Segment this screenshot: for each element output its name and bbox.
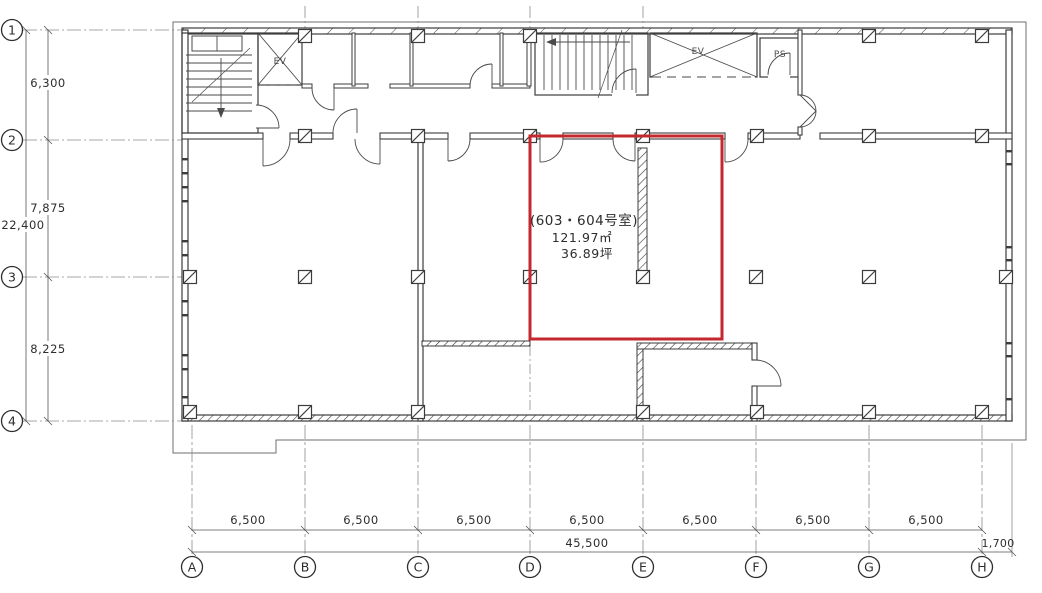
room-area-m2-label: 121.97㎡ bbox=[552, 230, 612, 245]
dim-7875: 7,875 bbox=[30, 201, 65, 215]
dim-22400-total: 22,400 bbox=[1, 218, 44, 232]
bottom-dimensions: 6,500 6,500 6,500 6,500 6,500 6,500 6,50… bbox=[188, 513, 1016, 556]
row-marker-3: 3 bbox=[8, 270, 16, 285]
dim-6500-5: 6,500 bbox=[682, 513, 717, 527]
interior-walls bbox=[182, 30, 802, 421]
dim-6500-3: 6,500 bbox=[456, 513, 491, 527]
row-marker-1: 1 bbox=[8, 23, 16, 38]
dim-6500-2: 6,500 bbox=[343, 513, 378, 527]
floor-plan-drawing: EV EV PS bbox=[0, 0, 1042, 593]
row-marker-4: 4 bbox=[8, 414, 16, 429]
floor-plan-canvas: EV EV PS bbox=[0, 0, 1042, 593]
col-marker-h: H bbox=[977, 560, 986, 575]
stairs-icon bbox=[186, 36, 252, 118]
stairs-icon-2 bbox=[544, 30, 632, 98]
elevator-main-label: EV bbox=[692, 47, 705, 57]
grid-col-markers: A B C D E F G H bbox=[182, 557, 993, 578]
dim-45500-total: 45,500 bbox=[565, 536, 608, 550]
dim-6500-4: 6,500 bbox=[569, 513, 604, 527]
col-marker-c: C bbox=[414, 560, 423, 575]
dim-8225: 8,225 bbox=[30, 342, 65, 356]
room-area-tsubo-label: 36.89坪 bbox=[561, 246, 613, 261]
col-marker-b: B bbox=[301, 560, 310, 575]
col-marker-g: G bbox=[864, 560, 874, 575]
room-name-label: (603・604号室) bbox=[530, 212, 638, 229]
row-marker-2: 2 bbox=[8, 133, 16, 148]
col-marker-e: E bbox=[639, 560, 647, 575]
dim-1700-offset: 1,700 bbox=[982, 537, 1015, 550]
highlight-room: (603・604号室) 121.97㎡ 36.89坪 bbox=[530, 136, 722, 339]
dim-6500-6: 6,500 bbox=[795, 513, 830, 527]
dim-6500-7: 6,500 bbox=[908, 513, 943, 527]
left-dimensions: 6,300 7,875 8,225 22,400 bbox=[1, 26, 70, 425]
col-marker-d: D bbox=[525, 560, 535, 575]
dim-6300: 6,300 bbox=[30, 76, 65, 90]
dim-6500-1: 6,500 bbox=[230, 513, 265, 527]
elevator-small-label: EV bbox=[274, 57, 287, 67]
col-marker-a: A bbox=[188, 560, 197, 575]
col-marker-f: F bbox=[752, 560, 759, 575]
partition-wall bbox=[638, 148, 647, 272]
